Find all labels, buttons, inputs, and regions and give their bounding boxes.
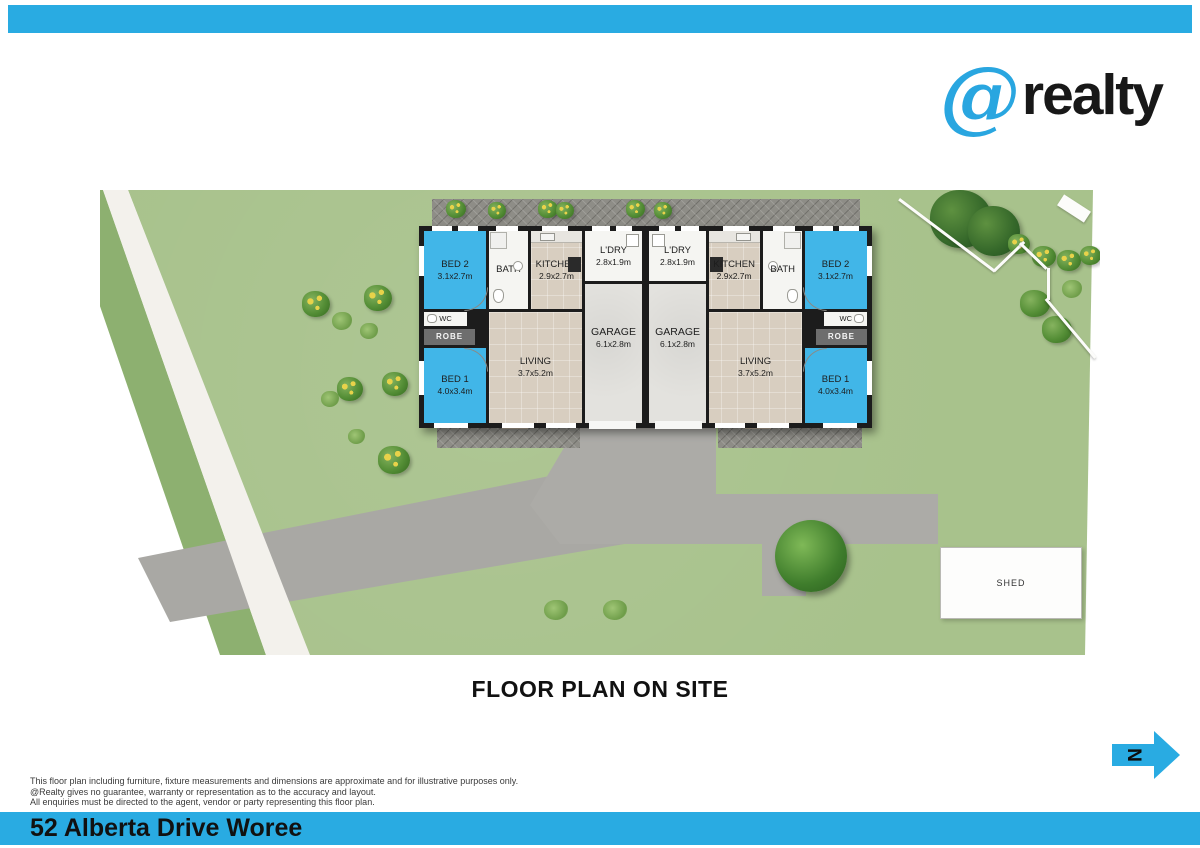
- room-dim: 2.8x1.9m: [596, 257, 631, 268]
- shower-fixture: [490, 232, 507, 249]
- room-name: BED 2: [819, 259, 854, 271]
- room-name: WC: [839, 314, 852, 323]
- bush: [378, 446, 410, 474]
- room-name: GARAGE: [591, 326, 636, 339]
- window: [546, 423, 576, 428]
- room-name: ROBE: [436, 332, 463, 342]
- bush: [1020, 290, 1050, 317]
- window: [592, 226, 610, 231]
- kitchen-counter: [709, 231, 760, 243]
- bush: [446, 200, 466, 218]
- window: [773, 226, 795, 231]
- shed-label: SHED: [996, 578, 1025, 588]
- window: [496, 226, 518, 231]
- bush: [626, 200, 645, 218]
- bush: [538, 200, 558, 218]
- room-living: LIVING3.7x5.2m: [709, 312, 802, 423]
- room-dim: 3.1x2.7m: [438, 271, 473, 282]
- room-name: LIVING: [738, 356, 773, 368]
- room-name: BED 1: [819, 374, 854, 386]
- sink-fixture: [736, 233, 751, 241]
- washer-fixture: [626, 234, 639, 247]
- bush: [654, 202, 672, 219]
- room-ldry: L'DRY2.8x1.9m: [585, 231, 642, 281]
- room-dim: 3.1x2.7m: [819, 271, 854, 282]
- toilet-fixture: [427, 314, 437, 323]
- window: [867, 246, 872, 276]
- room-kitchen: KITCHEN2.9x2.7m: [709, 231, 760, 309]
- bush: [556, 202, 574, 219]
- north-arrow-head-icon: [1154, 731, 1180, 779]
- room-dim: 6.1x2.8m: [655, 339, 700, 350]
- realty-logo: @ realty: [940, 52, 1162, 138]
- logo-at-icon: @: [940, 55, 1020, 135]
- window: [867, 361, 872, 395]
- window: [616, 226, 632, 231]
- room-dim: 2.9x2.7m: [714, 271, 756, 282]
- garage-door: [655, 421, 702, 429]
- bush: [488, 202, 506, 219]
- toilet-fixture: [787, 289, 798, 303]
- plan-title: FLOOR PLAN ON SITE: [0, 676, 1200, 703]
- garage-door: [589, 421, 636, 429]
- window: [432, 226, 452, 231]
- room-ldry: L'DRY2.8x1.9m: [649, 231, 706, 281]
- kitchen-counter: [531, 231, 582, 243]
- address-text: 52 Alberta Drive Woree: [30, 814, 302, 843]
- disclaimer-text: This floor plan including furniture, fix…: [30, 776, 730, 808]
- room-dim: 4.0x3.4m: [438, 386, 473, 397]
- window: [723, 226, 749, 231]
- room-living: LIVING3.7x5.2m: [489, 312, 582, 423]
- north-arrow-body: N: [1112, 744, 1154, 766]
- bush: [364, 285, 392, 311]
- room-garage: GARAGE6.1x2.8m: [649, 284, 706, 423]
- building: BED 23.1x2.7m BATH KITCHEN2.9x2.7m L'DR: [419, 226, 872, 428]
- room-name: BED 1: [438, 374, 473, 386]
- window: [813, 226, 833, 231]
- bush: [382, 372, 408, 396]
- window: [434, 423, 468, 428]
- room-dim: 6.1x2.8m: [591, 339, 636, 350]
- unit-left: BED 23.1x2.7m BATH KITCHEN2.9x2.7m L'DR: [424, 231, 642, 423]
- window: [419, 246, 424, 276]
- room-dim: 3.7x5.2m: [738, 368, 773, 379]
- window: [542, 226, 568, 231]
- bush: [1057, 250, 1081, 271]
- room-dim: 4.0x3.4m: [819, 386, 854, 397]
- room-name: KITCHEN: [714, 259, 756, 271]
- room-name: L'DRY: [660, 245, 695, 257]
- window: [757, 423, 789, 428]
- bush: [1042, 316, 1072, 343]
- room-robe: ROBE: [816, 329, 867, 345]
- unit-right: BED 23.1x2.7m BATH KITCHEN2.9x2.7m L'DR: [649, 231, 867, 423]
- north-label: N: [1122, 748, 1144, 762]
- window: [502, 423, 534, 428]
- address-bar: 52 Alberta Drive Woree: [0, 812, 1200, 845]
- fence-segment: [1047, 268, 1050, 300]
- bush: [302, 291, 330, 317]
- bush: [337, 377, 363, 401]
- north-arrow: N: [1110, 731, 1182, 779]
- room-bath: BATH: [763, 231, 802, 309]
- window: [458, 226, 478, 231]
- logo-wordmark: realty: [1022, 62, 1162, 128]
- window: [823, 423, 857, 428]
- room-wc: WC: [824, 312, 867, 326]
- room-name: BATH: [770, 264, 795, 276]
- room-wc: WC: [424, 312, 467, 326]
- room-dim: 2.9x2.7m: [536, 271, 578, 282]
- room-dim: 3.7x5.2m: [518, 368, 553, 379]
- room-dim: 2.8x1.9m: [660, 257, 695, 268]
- basin-fixture: [513, 261, 523, 271]
- window: [659, 226, 675, 231]
- toilet-fixture: [493, 289, 504, 303]
- stove-fixture: [568, 257, 581, 272]
- room-kitchen: KITCHEN2.9x2.7m: [531, 231, 582, 309]
- room-garage: GARAGE6.1x2.8m: [585, 284, 642, 423]
- room-name: BED 2: [438, 259, 473, 271]
- disclaimer-line: This floor plan including furniture, fix…: [30, 776, 730, 787]
- page-background: @ realty: [0, 0, 1200, 848]
- window: [839, 226, 859, 231]
- site-plan: SHED BED 23.1x2.7m BATH KITC: [100, 190, 1100, 655]
- shower-fixture: [784, 232, 801, 249]
- shed: SHED: [940, 547, 1082, 619]
- window: [681, 226, 699, 231]
- sink-fixture: [540, 233, 555, 241]
- room-bath: BATH: [489, 231, 528, 309]
- disclaimer-line: @Realty gives no guarantee, warranty or …: [30, 787, 730, 798]
- window: [419, 361, 424, 395]
- room-name: GARAGE: [655, 326, 700, 339]
- bush: [1080, 246, 1100, 265]
- disclaimer-line: All enquiries must be directed to the ag…: [30, 797, 730, 808]
- top-brand-bar: [8, 5, 1192, 33]
- room-name: ROBE: [828, 332, 855, 342]
- round-tree: [775, 520, 847, 592]
- room-robe: ROBE: [424, 329, 475, 345]
- room-name: WC: [439, 314, 452, 323]
- window: [715, 423, 745, 428]
- toilet-fixture: [854, 314, 864, 323]
- room-name: LIVING: [518, 356, 553, 368]
